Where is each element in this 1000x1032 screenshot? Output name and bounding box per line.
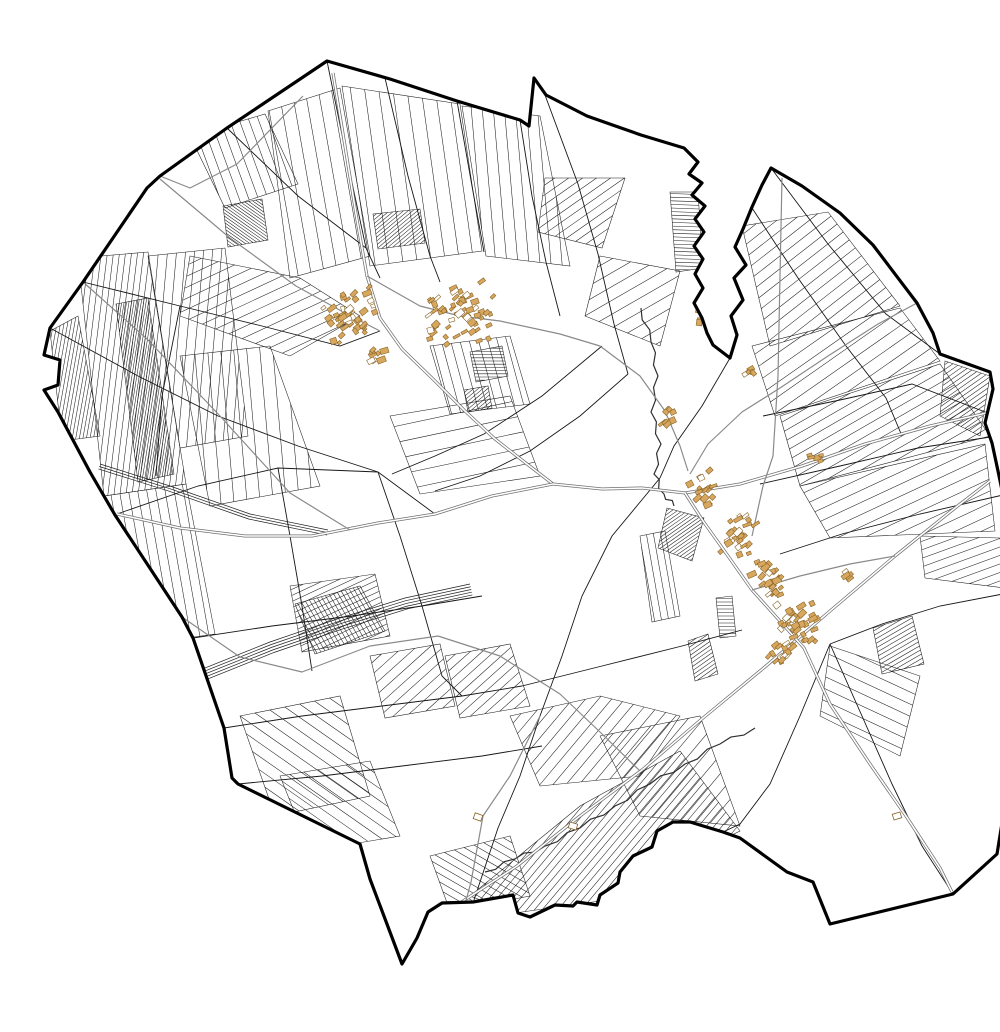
cadastral-map	[40, 16, 1000, 1016]
cadastral-map-canvas	[40, 16, 1000, 1016]
